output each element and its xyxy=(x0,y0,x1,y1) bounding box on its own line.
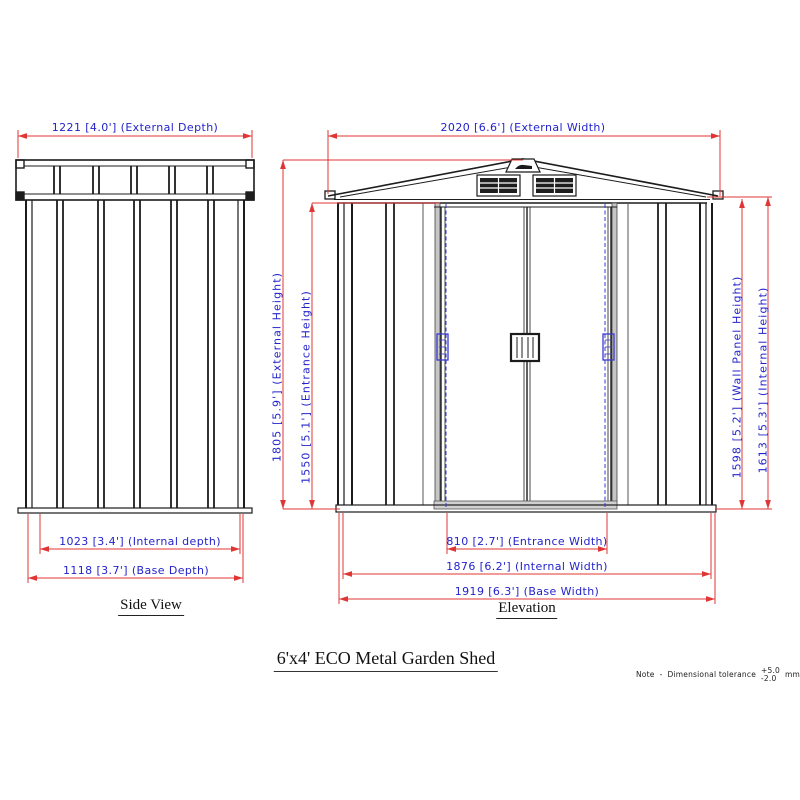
side-wall-panels xyxy=(26,200,244,508)
side-roof-band xyxy=(16,160,254,200)
dim-label-wall-panel-height: 1598 [5.2'] (Wall Panel Height) xyxy=(731,276,744,479)
dimension-lines xyxy=(18,130,772,604)
gable-vent-left-icon xyxy=(477,175,520,196)
note-dash: - xyxy=(660,670,663,679)
elevation-wall-right xyxy=(612,203,712,505)
note-label: Note xyxy=(636,670,655,679)
elevation-wall-left xyxy=(338,203,440,505)
elevation-roof xyxy=(325,159,723,203)
side-base-rail xyxy=(18,508,252,513)
elevation-drawing xyxy=(325,159,723,512)
sliding-doors xyxy=(434,207,617,509)
elevation-label: Elevation xyxy=(496,600,557,619)
dim-label-base-depth: 1118 [3.7'] (Base Depth) xyxy=(63,564,209,577)
note-body: Dimensional tolerance xyxy=(667,670,756,679)
dim-label-entrance-height: 1550 [5.1'] (Entrance Height) xyxy=(300,290,313,484)
dim-internal-depth xyxy=(40,514,240,554)
drawing-title: 6'x4' ECO Metal Garden Shed xyxy=(274,648,498,672)
dim-label-internal-depth: 1023 [3.4'] (Internal depth) xyxy=(59,535,221,548)
dim-label-entrance-width: 810 [2.7'] (Entrance Width) xyxy=(446,535,607,548)
ridge-cap xyxy=(506,159,540,172)
note-unit: mm. xyxy=(785,670,800,679)
dim-external-depth xyxy=(18,130,252,158)
note-tolerance-minus: -2.0 xyxy=(761,675,780,683)
dim-label-external-width: 2020 [6.6'] (External Width) xyxy=(441,121,606,134)
gable-vent-right-icon xyxy=(533,175,576,196)
note-tolerance-values: +5.0 -2.0 xyxy=(761,667,780,682)
dim-entrance-height xyxy=(312,203,440,509)
drawing-sheet: 1221 [4.0'] (External Depth) 1023 [3.4']… xyxy=(0,0,800,800)
dim-label-external-depth: 1221 [4.0'] (External Depth) xyxy=(52,121,219,134)
dim-external-height xyxy=(283,160,523,509)
dim-label-internal-width: 1876 [6.2'] (Internal Width) xyxy=(446,560,608,573)
side-view-label: Side View xyxy=(118,597,184,616)
door-centre-handle xyxy=(511,334,539,361)
tolerance-note: Note - Dimensional tolerance +5.0 -2.0 m… xyxy=(636,667,800,682)
dim-label-internal-height: 1613 [5.3'] (Internal Height) xyxy=(757,287,770,474)
side-view-drawing xyxy=(16,160,254,513)
dim-label-base-width: 1919 [6.3'] (Base Width) xyxy=(455,585,600,598)
dim-label-external-height: 1805 [5.9'] (External Height) xyxy=(271,272,284,462)
